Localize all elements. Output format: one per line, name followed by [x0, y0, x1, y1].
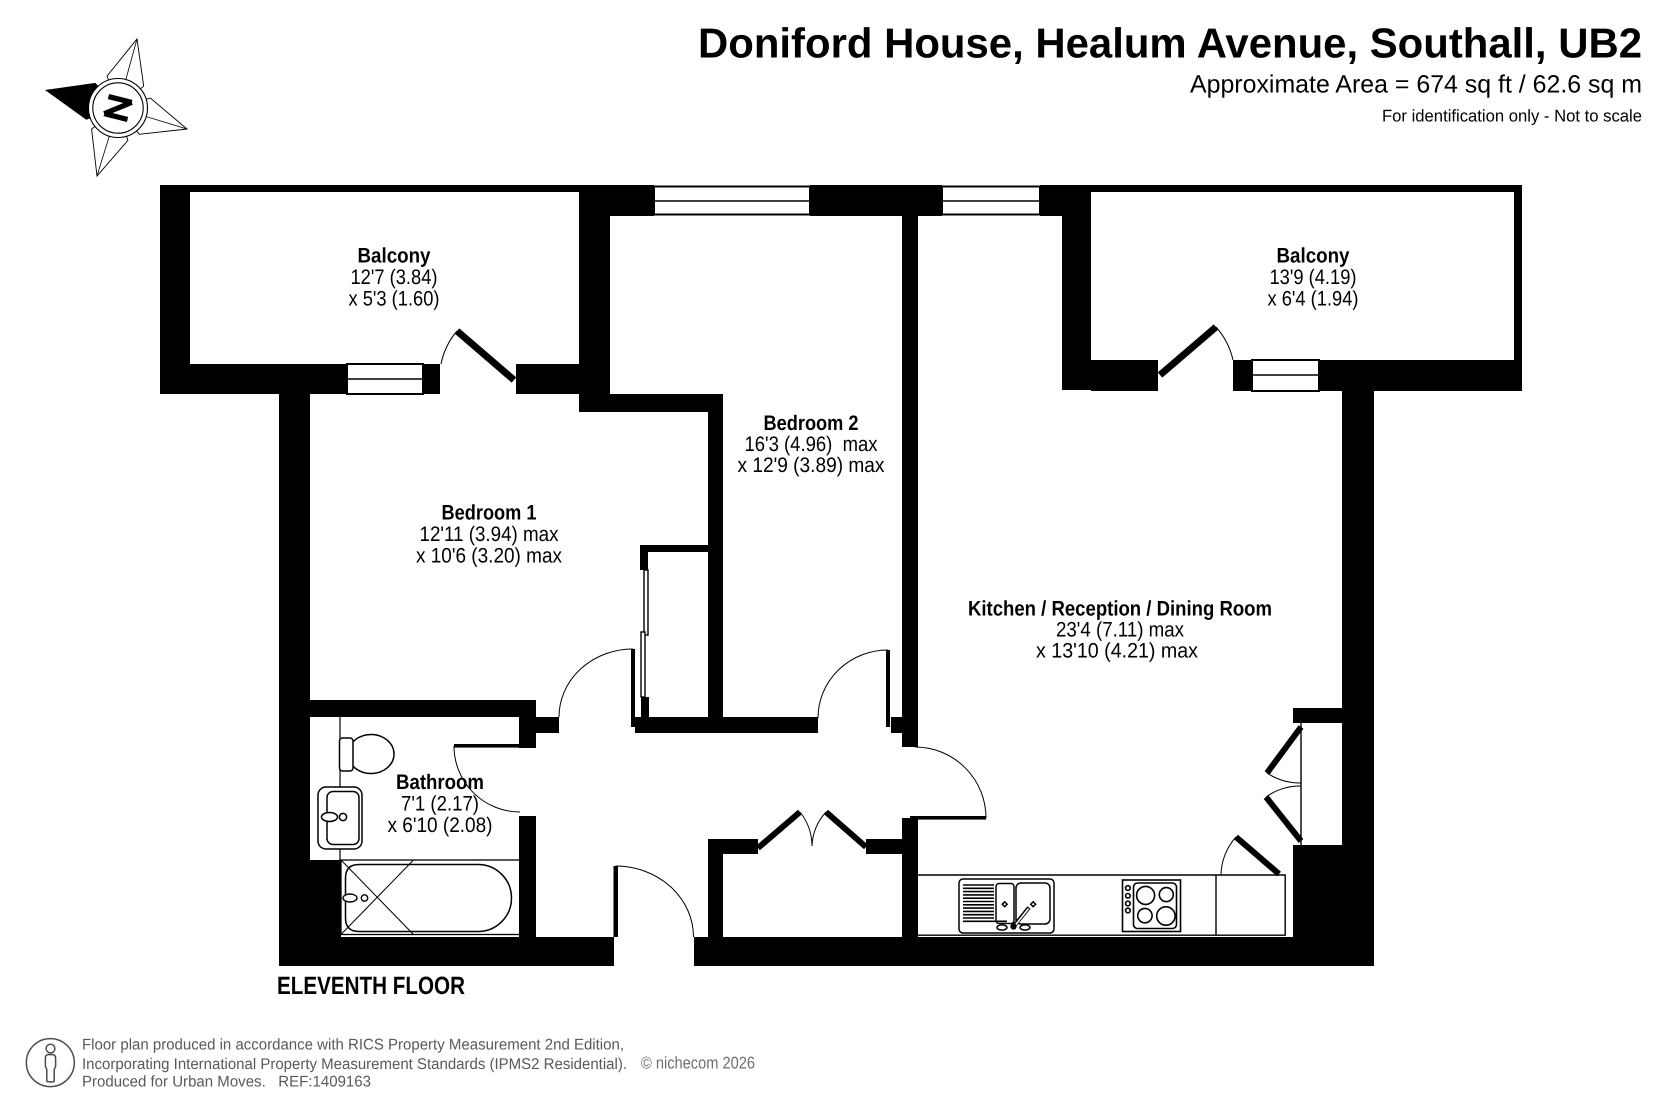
svg-text:Bedroom 1: Bedroom 1 — [442, 502, 537, 525]
svg-text:x 12'9 (3.89) max: x 12'9 (3.89) max — [738, 454, 885, 477]
svg-text:12'11 (3.94) max: 12'11 (3.94) max — [420, 523, 559, 546]
svg-text:x 6'10 (2.08): x 6'10 (2.08) — [388, 814, 493, 837]
svg-text:16'3 (4.96) max: 16'3 (4.96) max — [745, 433, 878, 456]
svg-text:12'7 (3.84): 12'7 (3.84) — [351, 266, 438, 289]
svg-text:x 10'6 (3.20) max: x 10'6 (3.20) max — [416, 545, 562, 568]
svg-text:23'4 (7.11) max: 23'4 (7.11) max — [1056, 619, 1184, 642]
svg-text:x 5'3 (1.60): x 5'3 (1.60) — [349, 288, 440, 311]
svg-text:Approximate Area = 674 sq ft /: Approximate Area = 674 sq ft / 62.6 sq m — [1190, 71, 1642, 99]
svg-text:Incorporating International Pr: Incorporating International Property Mea… — [82, 1056, 627, 1073]
svg-text:For identification only - Not: For identification only - Not to scale — [1382, 107, 1642, 126]
svg-text:Balcony: Balcony — [1277, 245, 1350, 268]
svg-text:Produced for Urban Moves. RE: Produced for Urban Moves. REF:1409163 — [82, 1073, 371, 1090]
svg-text:x 13'10 (4.21) max: x 13'10 (4.21) max — [1036, 640, 1198, 663]
svg-text:Doniford House, Healum Avenue,: Doniford House, Healum Avenue, Southall,… — [698, 20, 1642, 67]
svg-text:Bathroom: Bathroom — [396, 771, 484, 794]
svg-text:Kitchen / Reception / Dining R: Kitchen / Reception / Dining Room — [968, 598, 1272, 621]
svg-text:Bedroom 2: Bedroom 2 — [764, 412, 859, 435]
svg-text:Floor plan produced in accorda: Floor plan produced in accordance with R… — [82, 1037, 624, 1054]
svg-text:ELEVENTH FLOOR: ELEVENTH FLOOR — [277, 972, 465, 1000]
svg-text:7'1 (2.17): 7'1 (2.17) — [401, 793, 479, 816]
svg-text:x 6'4 (1.94): x 6'4 (1.94) — [1268, 288, 1359, 311]
svg-text:© nichecom 2026: © nichecom 2026 — [641, 1053, 755, 1072]
svg-text:13'9 (4.19): 13'9 (4.19) — [1270, 266, 1357, 289]
svg-text:Balcony: Balcony — [358, 245, 431, 268]
